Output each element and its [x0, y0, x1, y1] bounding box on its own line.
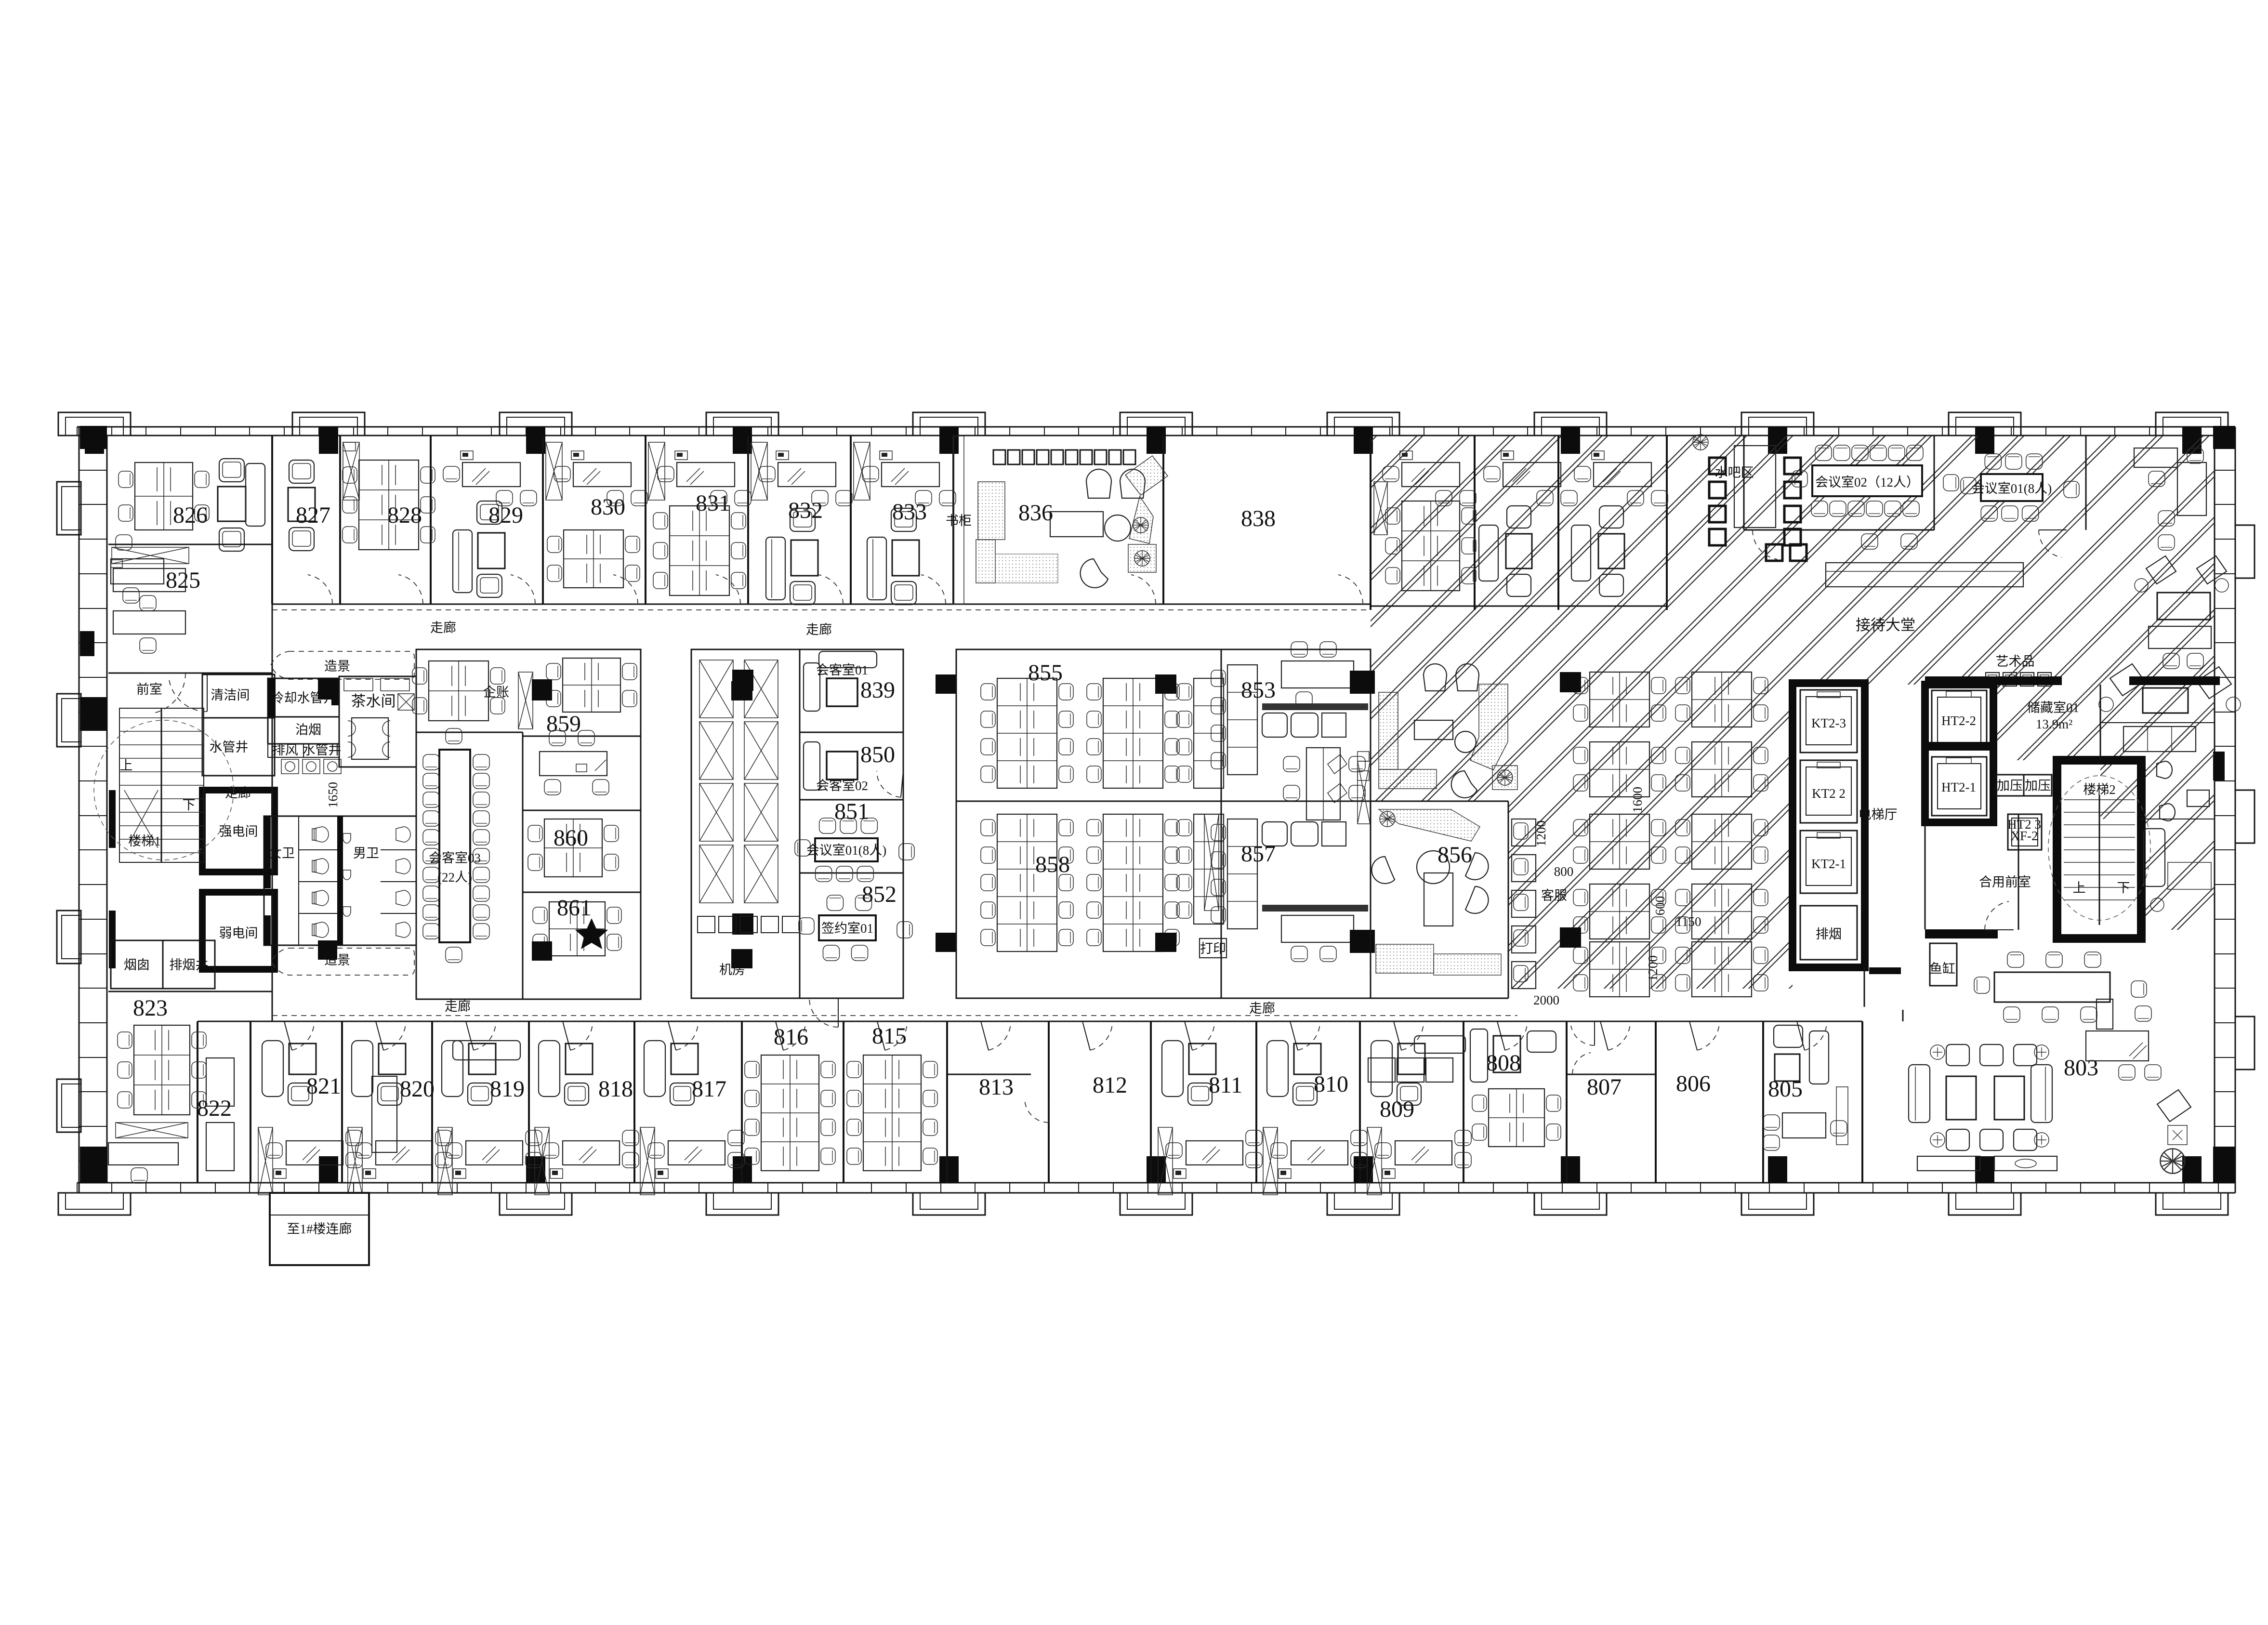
svg-text:852: 852: [862, 882, 897, 907]
svg-text:企账: 企账: [483, 685, 509, 700]
svg-text:826: 826: [173, 502, 208, 528]
svg-text:清洁间: 清洁间: [211, 688, 250, 702]
svg-text:男卫: 男卫: [353, 846, 379, 860]
svg-text:807: 807: [1587, 1074, 1622, 1100]
svg-text:823: 823: [133, 995, 168, 1021]
svg-text:下: 下: [183, 798, 196, 812]
svg-text:合用前室: 合用前室: [1979, 875, 2031, 889]
svg-text:819: 819: [490, 1076, 525, 1102]
svg-text:泊烟: 泊烟: [295, 723, 321, 737]
svg-text:13.9m²: 13.9m²: [2036, 717, 2072, 731]
svg-text:1200: 1200: [1534, 820, 1548, 846]
svg-text:1600: 1600: [1630, 787, 1645, 813]
svg-text:855: 855: [1028, 660, 1063, 686]
svg-text:KT2-3: KT2-3: [1811, 716, 1846, 730]
svg-text:会议室01(8人): 会议室01(8人): [806, 843, 886, 858]
svg-text:853: 853: [1241, 677, 1276, 703]
svg-text:签约室01: 签约室01: [821, 921, 873, 936]
svg-text:800: 800: [1554, 864, 1574, 879]
svg-text:会议室01(8人): 会议室01(8人): [1972, 481, 2052, 496]
svg-text:电梯厅: 电梯厅: [1859, 807, 1898, 822]
svg-text:806: 806: [1676, 1071, 1711, 1097]
svg-text:816: 816: [774, 1024, 808, 1050]
svg-text:1650: 1650: [326, 782, 340, 808]
svg-text:817: 817: [692, 1076, 726, 1102]
svg-text:830: 830: [591, 494, 625, 520]
svg-text:女卫: 女卫: [269, 846, 295, 860]
svg-text:838: 838: [1241, 506, 1276, 531]
svg-text:XF-2: XF-2: [2010, 829, 2038, 843]
svg-text:烟囱: 烟囱: [124, 958, 150, 972]
svg-text:827: 827: [296, 502, 330, 528]
svg-text:加压: 加压: [2025, 779, 2051, 793]
svg-text:KT2-1: KT2-1: [1811, 857, 1846, 871]
svg-text:鱼缸: 鱼缸: [1929, 962, 1955, 976]
svg-text:HT2-1: HT2-1: [1941, 780, 1976, 794]
svg-text:打印: 打印: [1200, 941, 1226, 956]
svg-text:走廊: 走廊: [225, 786, 251, 800]
svg-text:会客室03: 会客室03: [429, 851, 481, 865]
svg-text:走廊: 走廊: [806, 622, 832, 637]
svg-text:811: 811: [1209, 1072, 1242, 1098]
svg-text:下: 下: [2117, 881, 2130, 895]
svg-text:820: 820: [400, 1076, 435, 1102]
svg-text:排风: 排风: [272, 743, 298, 757]
svg-text:815: 815: [872, 1023, 907, 1049]
svg-text:(22人): (22人): [437, 870, 472, 885]
svg-text:851: 851: [834, 799, 869, 824]
svg-text:810: 810: [1314, 1071, 1348, 1097]
svg-text:836: 836: [1018, 500, 1053, 526]
svg-text:860: 860: [554, 825, 588, 851]
svg-text:茶水间: 茶水间: [351, 693, 396, 710]
svg-text:水吧区: 水吧区: [1715, 465, 1754, 480]
svg-text:走廊: 走廊: [445, 999, 471, 1014]
svg-text:812: 812: [1093, 1072, 1127, 1098]
svg-text:楼梯1: 楼梯1: [128, 834, 161, 848]
svg-text:水管井: 水管井: [303, 743, 342, 757]
svg-text:会议室02（12人）: 会议室02（12人）: [1815, 475, 1919, 489]
svg-text:839: 839: [860, 677, 895, 703]
svg-text:上: 上: [2073, 881, 2086, 895]
svg-text:825: 825: [166, 568, 200, 593]
svg-text:HT2-2: HT2-2: [1941, 713, 1976, 728]
svg-text:857: 857: [1241, 841, 1276, 867]
svg-text:书柜: 书柜: [946, 514, 972, 528]
svg-text:850: 850: [860, 742, 895, 767]
svg-text:858: 858: [1035, 852, 1070, 877]
svg-text:KT2 2: KT2 2: [1812, 786, 1846, 801]
svg-text:排烟: 排烟: [1816, 927, 1842, 941]
svg-text:803: 803: [2064, 1055, 2098, 1081]
svg-text:楼梯2: 楼梯2: [2083, 782, 2116, 797]
svg-text:861: 861: [557, 895, 592, 921]
svg-text:弱电间: 弱电间: [219, 926, 258, 940]
svg-text:818: 818: [598, 1076, 633, 1102]
svg-text:走廊: 走廊: [430, 621, 456, 635]
svg-text:接待大堂: 接待大堂: [1856, 617, 1915, 634]
svg-text:828: 828: [387, 502, 422, 528]
svg-text:储藏室01: 储藏室01: [2027, 700, 2079, 715]
svg-text:艺术品: 艺术品: [1996, 654, 2035, 669]
svg-text:水管井: 水管井: [210, 740, 249, 754]
svg-text:至1#楼连廊: 至1#楼连廊: [287, 1222, 352, 1236]
svg-text:1200: 1200: [1646, 955, 1660, 981]
svg-text:813: 813: [979, 1074, 1014, 1100]
svg-text:822: 822: [197, 1096, 232, 1121]
svg-text:859: 859: [546, 711, 581, 737]
svg-text:走廊: 走廊: [1249, 1001, 1275, 1016]
svg-text:强电间: 强电间: [219, 824, 258, 839]
svg-text:客服: 客服: [1541, 888, 1567, 903]
svg-text:805: 805: [1768, 1076, 1803, 1102]
svg-text:2000: 2000: [1533, 993, 1559, 1007]
svg-text:加压: 加压: [1997, 779, 2023, 793]
svg-text:会客室02: 会客室02: [816, 779, 868, 793]
svg-text:造景: 造景: [324, 659, 350, 674]
svg-text:前室: 前室: [136, 682, 162, 697]
svg-text:856: 856: [1437, 842, 1472, 868]
svg-text:会客室01: 会客室01: [816, 663, 868, 677]
svg-text:上: 上: [120, 758, 133, 773]
svg-text:排烟井: 排烟井: [170, 958, 209, 972]
